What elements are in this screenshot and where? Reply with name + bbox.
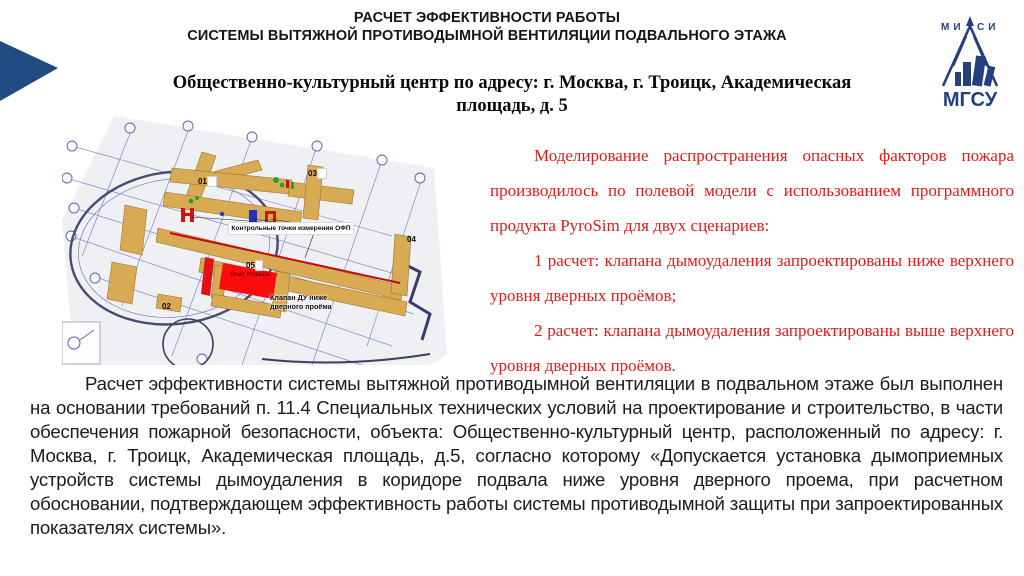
presentation-slide: РАСЧЕТ ЭФФЕКТИВНОСТИ РАБОТЫ СИСТЕМЫ ВЫТЯ… xyxy=(0,0,1024,576)
slide-subtitle: Общественно-культурный центр по адресу: … xyxy=(162,72,862,118)
room-label-o3: 03 xyxy=(308,169,327,178)
modeling-description-text: Моделирование распространения опасных фа… xyxy=(490,138,1014,383)
room-label-o4: 04 xyxy=(407,235,416,244)
control-points-label: Контрольные точки измерения ОФП xyxy=(228,222,354,235)
mgsu-logo-icon: МИ СИ МГСУ xyxy=(929,14,1011,112)
smoke-valve-label: Клапан ДУ ниже дверного проёма xyxy=(270,293,362,311)
slide-title-line2: СИСТЕМЫ ВЫТЯЖНОЙ ПРОТИВОДЫМНОЙ ВЕНТИЛЯЦИ… xyxy=(60,28,914,46)
logo-misi-text2: СИ xyxy=(977,22,999,33)
scenario-1-item: 1 расчет: клапана дымоудаления запроекти… xyxy=(490,243,1014,313)
calculation-basis-text: Расчет эффективности системы вытяжной пр… xyxy=(30,372,1003,540)
mgsu-logo: МИ СИ МГСУ xyxy=(929,14,1011,112)
fire-source-label: Очаг пожара xyxy=(224,271,276,278)
slide-title: РАСЧЕТ ЭФФЕКТИВНОСТИ РАБОТЫ СИСТЕМЫ ВЫТЯ… xyxy=(60,10,914,45)
modeling-paragraph: Моделирование распространения опасных фа… xyxy=(490,138,1014,243)
room-label-o2: 02 xyxy=(162,302,171,311)
building-3d-plan-figure: 01 03 04 05 02 Контрольные точки измерен… xyxy=(62,116,447,365)
building-plan-drawing xyxy=(62,116,447,365)
room-label-o5: 05 xyxy=(246,261,263,270)
logo-misi-text: МИ xyxy=(941,22,965,33)
room-label-o1: 01 xyxy=(198,177,217,186)
smoke-valve-label-line2: дверного проёма xyxy=(270,302,362,311)
calculation-basis-paragraph: Расчет эффективности системы вытяжной пр… xyxy=(30,372,1003,540)
smoke-valve-label-line1: Клапан ДУ ниже xyxy=(270,293,362,302)
slide-title-line1: РАСЧЕТ ЭФФЕКТИВНОСТИ РАБОТЫ xyxy=(60,10,914,28)
accent-arrow-shape xyxy=(0,41,58,101)
logo-mgsu-text: МГСУ xyxy=(943,89,998,111)
